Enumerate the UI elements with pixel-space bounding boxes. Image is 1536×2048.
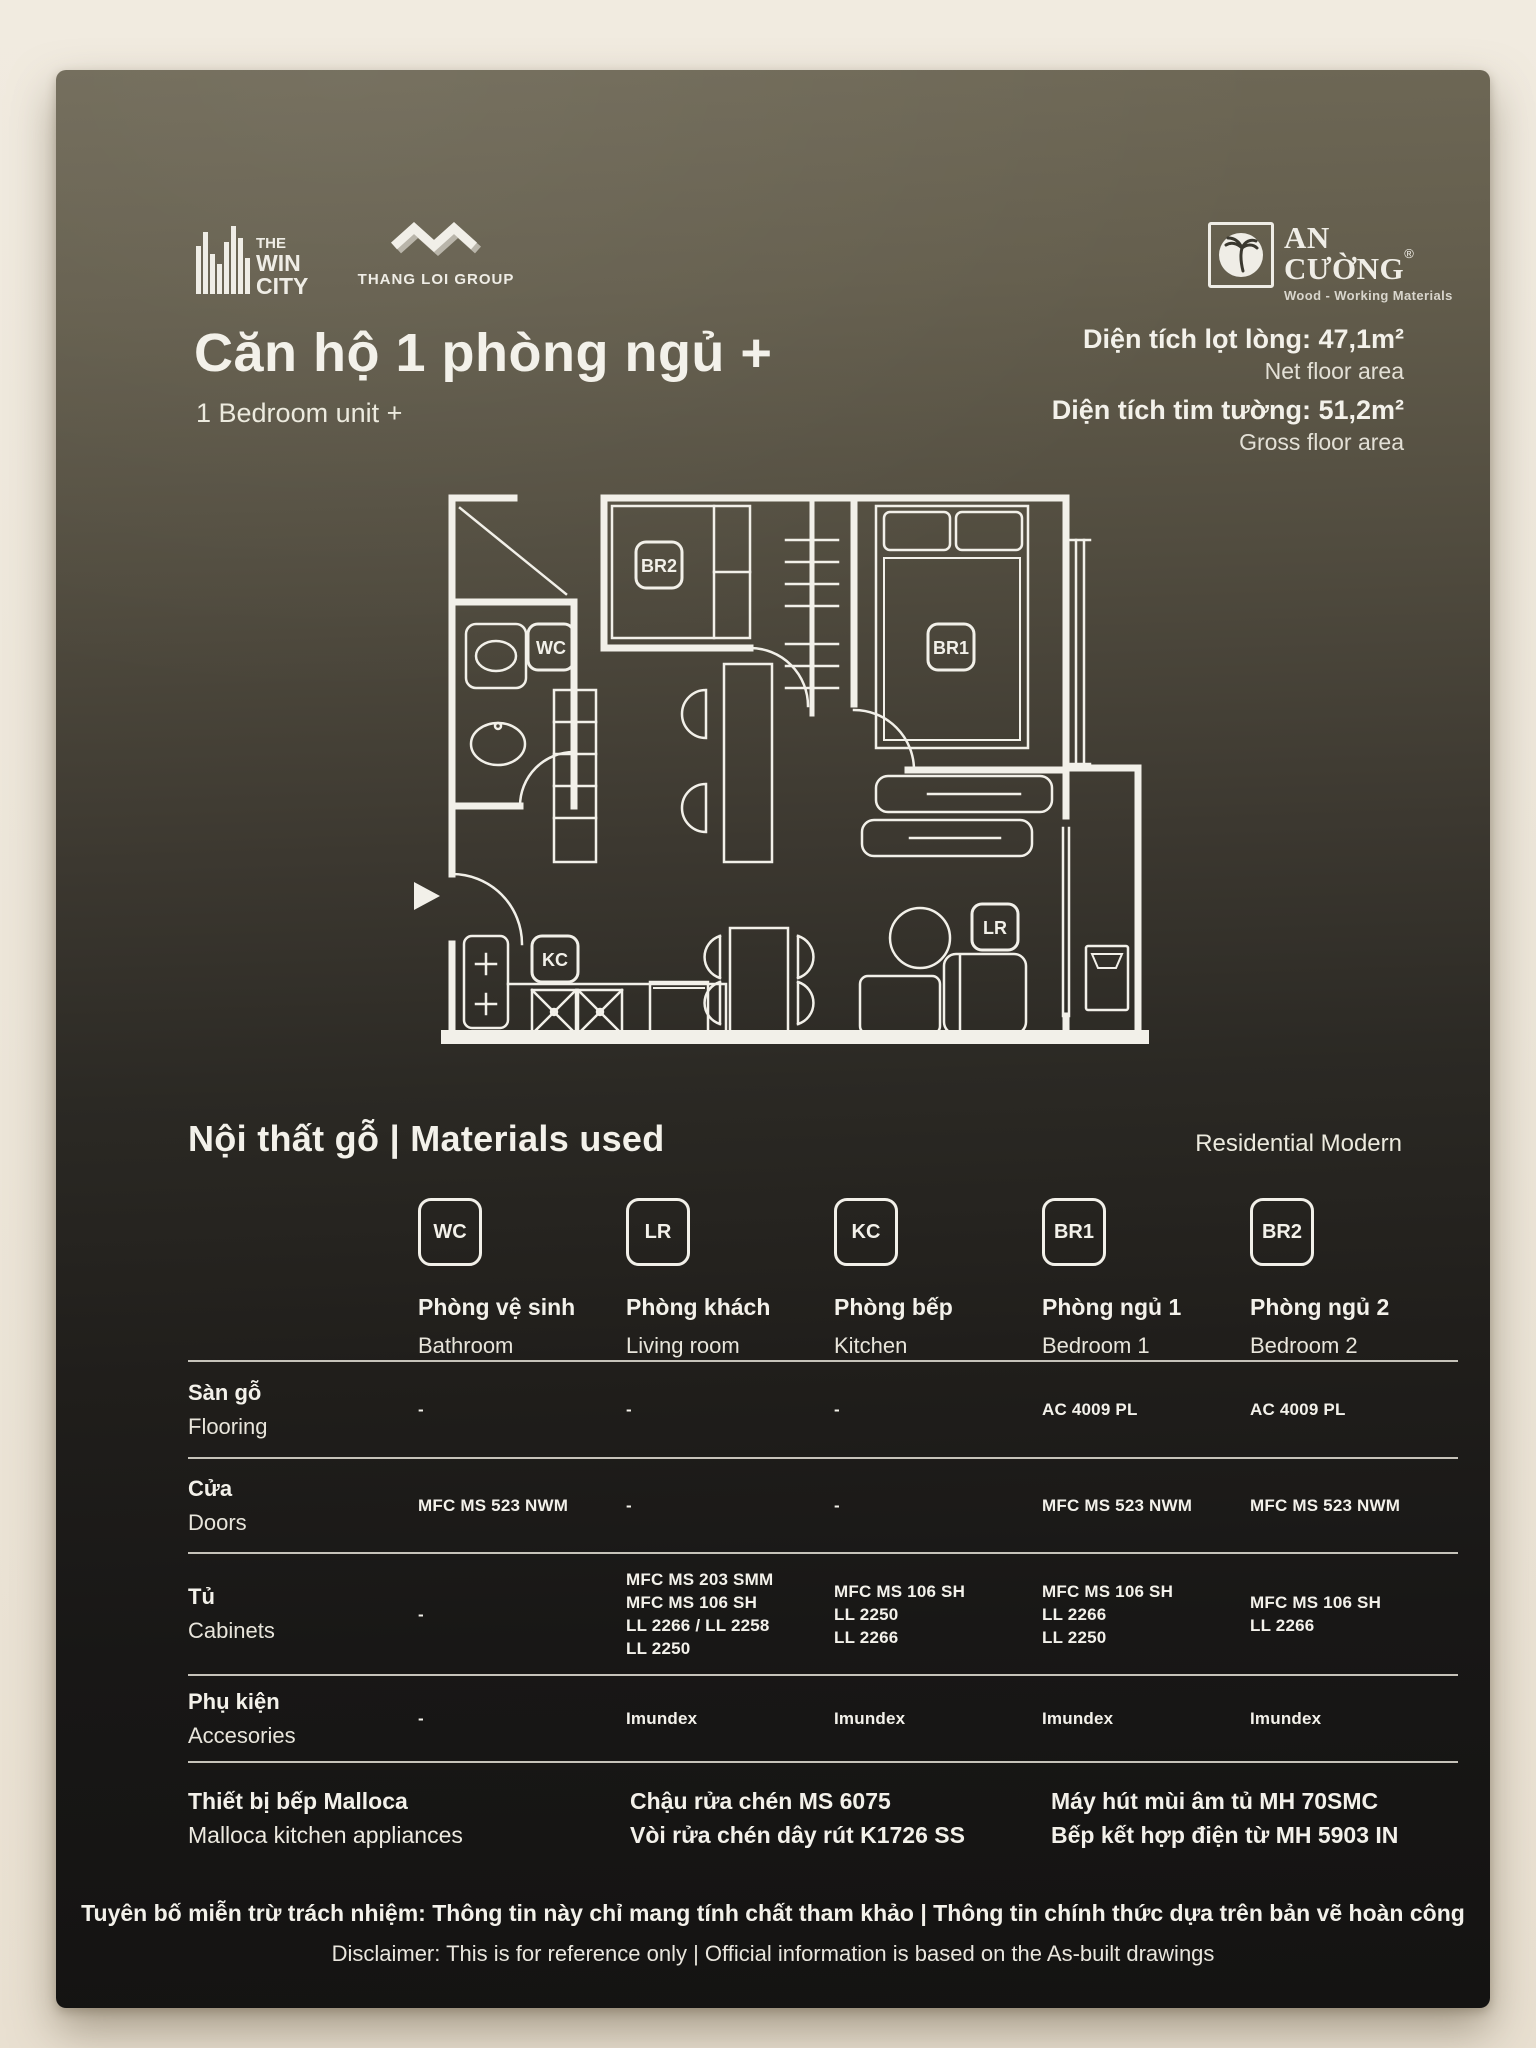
accessories-lr: Imundex: [626, 1707, 834, 1730]
plan-label-lr: LR: [983, 918, 1007, 938]
unit-subtitle: 1 Bedroom unit +: [196, 398, 402, 429]
row-label-en: Cabinets: [188, 1618, 418, 1644]
ac-ledge-hatch: [786, 498, 838, 714]
br1-bed: [876, 506, 1028, 748]
wc-name-en: Bathroom: [418, 1333, 626, 1359]
dining-set: [705, 928, 814, 1034]
plan-label-kc: KC: [542, 950, 568, 970]
doors-br1: MFC MS 523 NWM: [1042, 1494, 1250, 1517]
accessories-br1: Imundex: [1042, 1707, 1250, 1730]
doors-lr: -: [626, 1494, 834, 1517]
br2-name-vi: Phòng ngủ 2: [1250, 1294, 1458, 1321]
column-kc: KC Phòng bếp Kitchen: [834, 1198, 1042, 1359]
an-cuong-tagline: Wood - Working Materials: [1284, 289, 1458, 302]
doors-br2: MFC MS 523 NWM: [1250, 1494, 1458, 1517]
doors-wc: MFC MS 523 NWM: [418, 1494, 626, 1517]
sink-model: Chậu rửa chén MS 6075: [630, 1784, 1051, 1818]
row-label-en: Doors: [188, 1510, 418, 1536]
wc-name-vi: Phòng vệ sinh: [418, 1294, 626, 1321]
an-cuong-name: AN CƯỜNG: [1284, 220, 1404, 286]
wc-fixtures: [466, 624, 526, 765]
doors-kc: -: [834, 1494, 1042, 1517]
row-label-en: Accesories: [188, 1723, 418, 1749]
disclaimer: Tuyên bố miễn trừ trách nhiệm: Thông tin…: [56, 1900, 1490, 1967]
kc-badge: KC: [834, 1198, 898, 1266]
malloca-title-en: Malloca kitchen appliances: [188, 1818, 630, 1852]
cabinets-kc: MFC MS 106 SH LL 2250 LL 2266: [834, 1580, 1042, 1649]
floor-plan: WC BR2 BR1 LR KC: [408, 476, 1208, 1076]
accessories-br2: Imundex: [1250, 1707, 1458, 1730]
flooring-br2: AC 4009 PL: [1250, 1398, 1458, 1421]
gross-area-value: Diện tích tim tường: 51,2m²: [1052, 397, 1404, 424]
disclaimer-vi: Tuyên bố miễn trừ trách nhiệm: Thông tin…: [56, 1900, 1490, 1927]
lr-name-vi: Phòng khách: [626, 1294, 834, 1321]
row-label-en: Flooring: [188, 1414, 418, 1440]
row-label-vi: Sàn gỗ: [188, 1380, 418, 1406]
br1-name-en: Bedroom 1: [1042, 1333, 1250, 1359]
cabinets-br2: MFC MS 106 SH LL 2266: [1250, 1591, 1458, 1637]
row-label-vi: Cửa: [188, 1476, 418, 1502]
cooktop-model: Bếp kết hợp điện từ MH 5903 IN: [1051, 1818, 1458, 1852]
an-cuong-palm-icon: [1208, 222, 1274, 288]
cabinets-br1: MFC MS 106 SH LL 2266 LL 2250: [1042, 1580, 1250, 1649]
kc-name-en: Kitchen: [834, 1333, 1042, 1359]
column-br2: BR2 Phòng ngủ 2 Bedroom 2: [1250, 1198, 1458, 1359]
flooring-wc: -: [418, 1398, 626, 1421]
column-br1: BR1 Phòng ngủ 1 Bedroom 1: [1042, 1198, 1250, 1359]
kc-name-vi: Phòng bếp: [834, 1294, 1042, 1321]
br1-badge: BR1: [1042, 1198, 1106, 1266]
thang-loi-name: THANG LOI GROUP: [358, 271, 515, 288]
hood-model: Máy hút mùi âm tủ MH 70SMC: [1051, 1784, 1458, 1818]
br2-name-en: Bedroom 2: [1250, 1333, 1458, 1359]
accessories-kc: Imundex: [834, 1707, 1042, 1730]
win-city-logo: THE WIN CITY: [194, 220, 344, 300]
br2-badge: BR2: [1250, 1198, 1314, 1266]
shaft-mark: [460, 508, 566, 594]
flooring-lr: -: [626, 1398, 834, 1421]
table-row-accessories: Phụ kiện Accesories - Imundex Imundex Im…: [188, 1674, 1458, 1763]
floorplan-poster: THE WIN CITY THANG LOI GROUP: [56, 70, 1490, 2008]
kitchen-appliances: Thiết bị bếp Malloca Malloca kitchen app…: [188, 1784, 1458, 1852]
net-area-caption: Net floor area: [1052, 360, 1404, 383]
faucet-model: Vòi rửa chén dây rút K1726 SS: [630, 1818, 1051, 1852]
materials-section-title: Nội thất gỗ | Materials used: [188, 1118, 665, 1160]
flooring-br1: AC 4009 PL: [1042, 1398, 1250, 1421]
tv-console: [862, 776, 1052, 856]
plan-label-wc: WC: [536, 638, 566, 658]
room-columns-header: WC Phòng vệ sinh Bathroom LR Phòng khách…: [188, 1198, 1458, 1359]
win-city-line3: CITY: [256, 273, 308, 299]
lr-name-en: Living room: [626, 1333, 834, 1359]
row-label-vi: Tủ: [188, 1584, 418, 1610]
cabinets-wc: -: [418, 1603, 626, 1626]
unit-title: Căn hộ 1 phòng ngủ +: [194, 322, 772, 384]
materials-table: Sàn gỗ Flooring - - - AC 4009 PL AC 4009…: [188, 1360, 1458, 1763]
column-lr: LR Phòng khách Living room: [626, 1198, 834, 1359]
column-wc: WC Phòng vệ sinh Bathroom: [418, 1198, 626, 1359]
style-note: Residential Modern: [1195, 1130, 1402, 1158]
plan-label-br1: BR1: [933, 638, 969, 658]
win-city-skyline-icon: THE WIN CITY: [194, 220, 344, 300]
plan-label-br2: BR2: [641, 556, 677, 576]
area-info: Diện tích lọt lòng: 47,1m² Net floor are…: [1052, 326, 1404, 468]
thang-loi-logo: THANG LOI GROUP: [356, 218, 516, 300]
br1-name-vi: Phòng ngủ 1: [1042, 1294, 1250, 1321]
row-label-vi: Phụ kiện: [188, 1689, 418, 1715]
cabinets-lr: MFC MS 203 SMM MFC MS 106 SH LL 2266 / L…: [626, 1568, 834, 1660]
registered-mark: ®: [1404, 246, 1414, 261]
disclaimer-en: Disclaimer: This is for reference only |…: [56, 1941, 1490, 1967]
flooring-kc: -: [834, 1398, 1042, 1421]
gross-area-caption: Gross floor area: [1052, 431, 1404, 454]
kitchen-fixtures: [464, 936, 726, 1034]
malloca-title-vi: Thiết bị bếp Malloca: [188, 1784, 630, 1818]
table-row-flooring: Sàn gỗ Flooring - - - AC 4009 PL AC 4009…: [188, 1360, 1458, 1457]
door-arcs: [452, 648, 914, 944]
an-cuong-logo: AN CƯỜNG® Wood - Working Materials: [1208, 222, 1458, 286]
accessories-wc: -: [418, 1707, 626, 1730]
wc-badge: WC: [418, 1198, 482, 1266]
thang-loi-chevron-icon: [394, 228, 478, 250]
lr-badge: LR: [626, 1198, 690, 1266]
net-area-value: Diện tích lọt lòng: 47,1m²: [1052, 326, 1404, 353]
entrance-arrow-icon: [414, 882, 440, 910]
table-row-doors: Cửa Doors MFC MS 523 NWM - - MFC MS 523 …: [188, 1457, 1458, 1552]
table-row-cabinets: Tủ Cabinets - MFC MS 203 SMM MFC MS 106 …: [188, 1552, 1458, 1674]
